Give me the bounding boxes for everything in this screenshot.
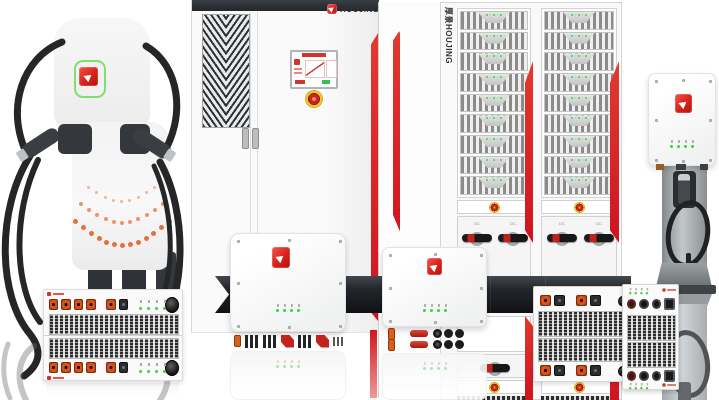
- power-module-slot: [460, 73, 528, 92]
- power-module-slot: [544, 156, 614, 175]
- module-part-or: [49, 299, 58, 310]
- module-part-g: [604, 300, 609, 301]
- indicator-dot: [145, 213, 149, 217]
- indicator-dot: [136, 217, 140, 221]
- indicator-dot: [136, 240, 141, 245]
- indicator-dot: [73, 219, 78, 224]
- estop-strip: [541, 380, 617, 394]
- power-module-slot: [544, 94, 614, 113]
- module-part-redbar: [410, 330, 428, 337]
- brand-mark: [47, 292, 65, 296]
- indicator-dot: [167, 219, 172, 224]
- module-part-g: [99, 304, 103, 305]
- screw: [434, 321, 437, 324]
- module-part-or: [540, 295, 551, 306]
- module-part-redz: [316, 335, 329, 348]
- indicator-dot: [104, 196, 107, 199]
- indicator-dot: [104, 217, 108, 221]
- module-part-g: [400, 333, 405, 334]
- screw: [339, 240, 342, 243]
- module-part-or: [576, 365, 587, 376]
- unit-divider: [44, 335, 182, 336]
- mount-tab: [700, 164, 708, 170]
- indicator-dot: [112, 199, 115, 202]
- inverter-box-small[interactable]: [382, 247, 487, 327]
- connector-row: [627, 369, 675, 383]
- module-part-or: [106, 299, 115, 310]
- terminal-row: [388, 340, 472, 349]
- vent-louvers: [49, 314, 179, 335]
- module-part-orb: [234, 335, 241, 347]
- module-part-c3: [433, 329, 465, 339]
- screw: [480, 254, 483, 257]
- brand-logo-icon: [427, 258, 442, 275]
- indicator-dot: [153, 208, 157, 212]
- module-column: [457, 8, 531, 198]
- power-module-slot: [544, 176, 614, 195]
- connector-row: [627, 297, 675, 311]
- module-part-cir: [639, 371, 648, 381]
- module-part-cir: [652, 371, 661, 381]
- switch-label: DC: [510, 221, 516, 226]
- brand-mark: [47, 376, 65, 380]
- switch-label: DC: [559, 221, 565, 226]
- switch-label: DC: [596, 221, 602, 226]
- module-part-sock: [664, 298, 675, 310]
- module-part-g: [131, 367, 135, 368]
- product-collage: HOUJING 厚景HOUJING: [0, 0, 719, 400]
- estop-strip: [541, 200, 617, 214]
- screen-text-line: [294, 72, 302, 74]
- screw: [288, 239, 291, 242]
- screw: [237, 325, 240, 328]
- brand-mark: [662, 383, 673, 386]
- power-module-slot: [544, 114, 614, 133]
- indicator-dot: [104, 240, 109, 245]
- emergency-stop-button: [489, 202, 500, 213]
- screw: [389, 320, 392, 323]
- indicator-dot: [128, 242, 133, 247]
- screen-header: [302, 53, 326, 57]
- brand-logo-icon: [272, 247, 290, 268]
- door-handle[interactable]: [242, 128, 249, 149]
- indicator-dot: [89, 231, 94, 236]
- module-part-or: [86, 362, 95, 373]
- module-part-orb: [388, 328, 395, 340]
- screen-logo: [294, 59, 300, 65]
- power-module-slot: [544, 11, 614, 30]
- indicator-dot: [153, 186, 156, 189]
- indicator-dot: [95, 191, 98, 194]
- screw: [237, 282, 240, 285]
- power-module-slot: [460, 176, 528, 195]
- module-part-g: [604, 370, 609, 371]
- module-part-dk: [119, 362, 128, 373]
- module-part-or: [49, 362, 58, 373]
- vent-grille: [202, 14, 250, 128]
- module-part-g: [131, 304, 135, 305]
- module-part-dk: [554, 365, 565, 376]
- terminal-row: [388, 329, 472, 338]
- indicator-dot: [120, 221, 124, 225]
- power-module-slot: [544, 32, 614, 51]
- indicator-dot: [87, 186, 90, 189]
- module-part-g: [568, 370, 573, 371]
- module-part-sock: [664, 370, 675, 382]
- module-part-or: [61, 362, 70, 373]
- emergency-stop-button: [489, 382, 500, 393]
- rack-power-module-right[interactable]: [622, 284, 679, 390]
- power-module-slot: [460, 135, 528, 154]
- module-part-pins: [298, 335, 312, 348]
- module-part-g: [568, 300, 573, 301]
- screen-button-green: [322, 80, 330, 84]
- module-part-g: [99, 367, 103, 368]
- emergency-stop-button: [574, 202, 585, 213]
- emergency-stop-button: [574, 382, 585, 393]
- brand-logo-text: HOUJING: [340, 5, 379, 14]
- status-leds: [670, 140, 695, 148]
- vent-louvers: [627, 315, 676, 341]
- module-part-or: [540, 365, 551, 376]
- module-part-pins: [263, 335, 277, 348]
- screw: [288, 326, 291, 329]
- screw: [682, 160, 685, 163]
- module-part-dk: [590, 365, 601, 376]
- module-part-dk: [590, 295, 601, 306]
- module-part-cirred: [627, 371, 636, 381]
- screw: [709, 119, 712, 122]
- switch-panel: DC DC: [541, 216, 617, 278]
- module-part-pins2: [333, 337, 343, 346]
- emergency-stop-button: [305, 90, 323, 108]
- indicator-dot: [79, 202, 83, 206]
- inverter-box-reflection: [382, 353, 487, 400]
- power-module-slot: [544, 52, 614, 71]
- module-part-g: [400, 344, 405, 345]
- module-part-redz: [281, 335, 294, 348]
- module-part-pins: [245, 335, 259, 348]
- module-part-or: [61, 299, 70, 310]
- screw: [480, 320, 483, 323]
- power-module-slot: [460, 94, 528, 113]
- power-module-slot: [460, 156, 528, 175]
- vent-louvers: [627, 342, 676, 368]
- brand-logo-icon: [79, 67, 98, 86]
- accent-stripe: [525, 316, 533, 400]
- status-leds: [629, 383, 649, 389]
- power-module-slot: [544, 135, 614, 154]
- rotary-switch: DC: [462, 227, 492, 249]
- indicator-dot: [120, 200, 123, 203]
- screw: [339, 282, 342, 285]
- status-leds: [276, 304, 301, 312]
- screw: [389, 287, 392, 290]
- screen-text-line: [294, 68, 302, 70]
- connector-row: [49, 360, 179, 375]
- indicator-dot: [128, 220, 132, 224]
- rotary-switch: DC: [547, 227, 577, 249]
- brand-logo-icon: [675, 94, 692, 113]
- accent-stripe: [393, 30, 400, 240]
- module-column: [541, 8, 617, 198]
- brand-logo-icon: [327, 4, 337, 14]
- screen-panel: [326, 60, 337, 78]
- module-part-or: [74, 299, 83, 310]
- module-part-or: [106, 362, 115, 373]
- screw: [237, 240, 240, 243]
- accent-stripe: [610, 61, 619, 243]
- indicator-dot: [112, 220, 116, 224]
- inverter-box-large[interactable]: [230, 233, 346, 332]
- indicator-dot: [137, 196, 140, 199]
- power-module-slot: [460, 52, 528, 71]
- module-part-cir: [652, 299, 661, 309]
- screw: [389, 254, 392, 257]
- estop-strip: [457, 200, 531, 214]
- indicator-dot: [128, 199, 131, 202]
- module-part-knob: [165, 297, 179, 313]
- accent-stripe: [525, 61, 533, 243]
- indicator-dot: [95, 213, 99, 217]
- power-module-slot: [460, 11, 528, 30]
- indicator-dot: [97, 236, 102, 241]
- power-module-slot: [544, 73, 614, 92]
- rotary-switch: DC: [584, 227, 614, 249]
- module-part-or: [86, 299, 95, 310]
- module-part-cir: [639, 299, 648, 309]
- switch-label: DC: [474, 221, 480, 226]
- mount-tab: [676, 164, 686, 170]
- module-part-redbar: [410, 341, 428, 348]
- screw: [339, 325, 342, 328]
- module-part-or: [74, 362, 83, 373]
- screw: [655, 80, 658, 83]
- wallbox-body[interactable]: [648, 73, 716, 166]
- inverter-box-reflection: [230, 351, 346, 400]
- indicator-dot: [145, 191, 148, 194]
- module-part-orb: [388, 339, 395, 351]
- screw: [709, 80, 712, 83]
- power-module-slot: [460, 114, 528, 133]
- power-module-stack[interactable]: [43, 289, 183, 381]
- bottom-slats: [541, 396, 617, 400]
- indicator-dot: [120, 243, 125, 248]
- module-part-led: [138, 363, 162, 373]
- module-part-knob: [165, 360, 179, 376]
- rack-vertical-brand: 厚景HOUJING: [443, 7, 454, 64]
- indicator-dot: [159, 225, 164, 230]
- indicator-dot: [112, 242, 117, 247]
- status-leds: [423, 362, 448, 370]
- connector-row: [49, 297, 179, 312]
- indicator-dot: [87, 208, 91, 212]
- indicator-dot: [81, 225, 86, 230]
- screw: [480, 287, 483, 290]
- screw: [655, 119, 658, 122]
- terminal-row: [234, 333, 344, 349]
- module-part-dk: [119, 299, 128, 310]
- mount-tab: [656, 164, 664, 170]
- module-part-led: [138, 300, 162, 310]
- power-module-slot: [460, 32, 528, 51]
- vent-louvers: [49, 338, 179, 359]
- screen-chart: [305, 60, 325, 78]
- status-leds: [276, 360, 301, 368]
- brand-mark: [662, 288, 673, 291]
- screen-button-red: [295, 80, 305, 84]
- screw: [434, 253, 437, 256]
- hmi-screen[interactable]: [290, 50, 338, 89]
- indicator-dot: [144, 236, 149, 241]
- status-leds: [423, 304, 448, 312]
- screw: [682, 79, 685, 82]
- screw: [709, 159, 712, 162]
- module-part-dk: [554, 295, 565, 306]
- screw: [655, 159, 658, 162]
- module-part-or: [576, 295, 587, 306]
- status-leds: [629, 288, 649, 294]
- module-part-cirred: [627, 299, 636, 309]
- indicator-dot: [151, 231, 156, 236]
- indicator-dot: [161, 202, 165, 206]
- module-part-c3: [433, 340, 465, 350]
- rotary-switch: DC: [498, 227, 528, 249]
- door-handle[interactable]: [252, 128, 259, 149]
- accent-stripe-lower: [370, 330, 377, 398]
